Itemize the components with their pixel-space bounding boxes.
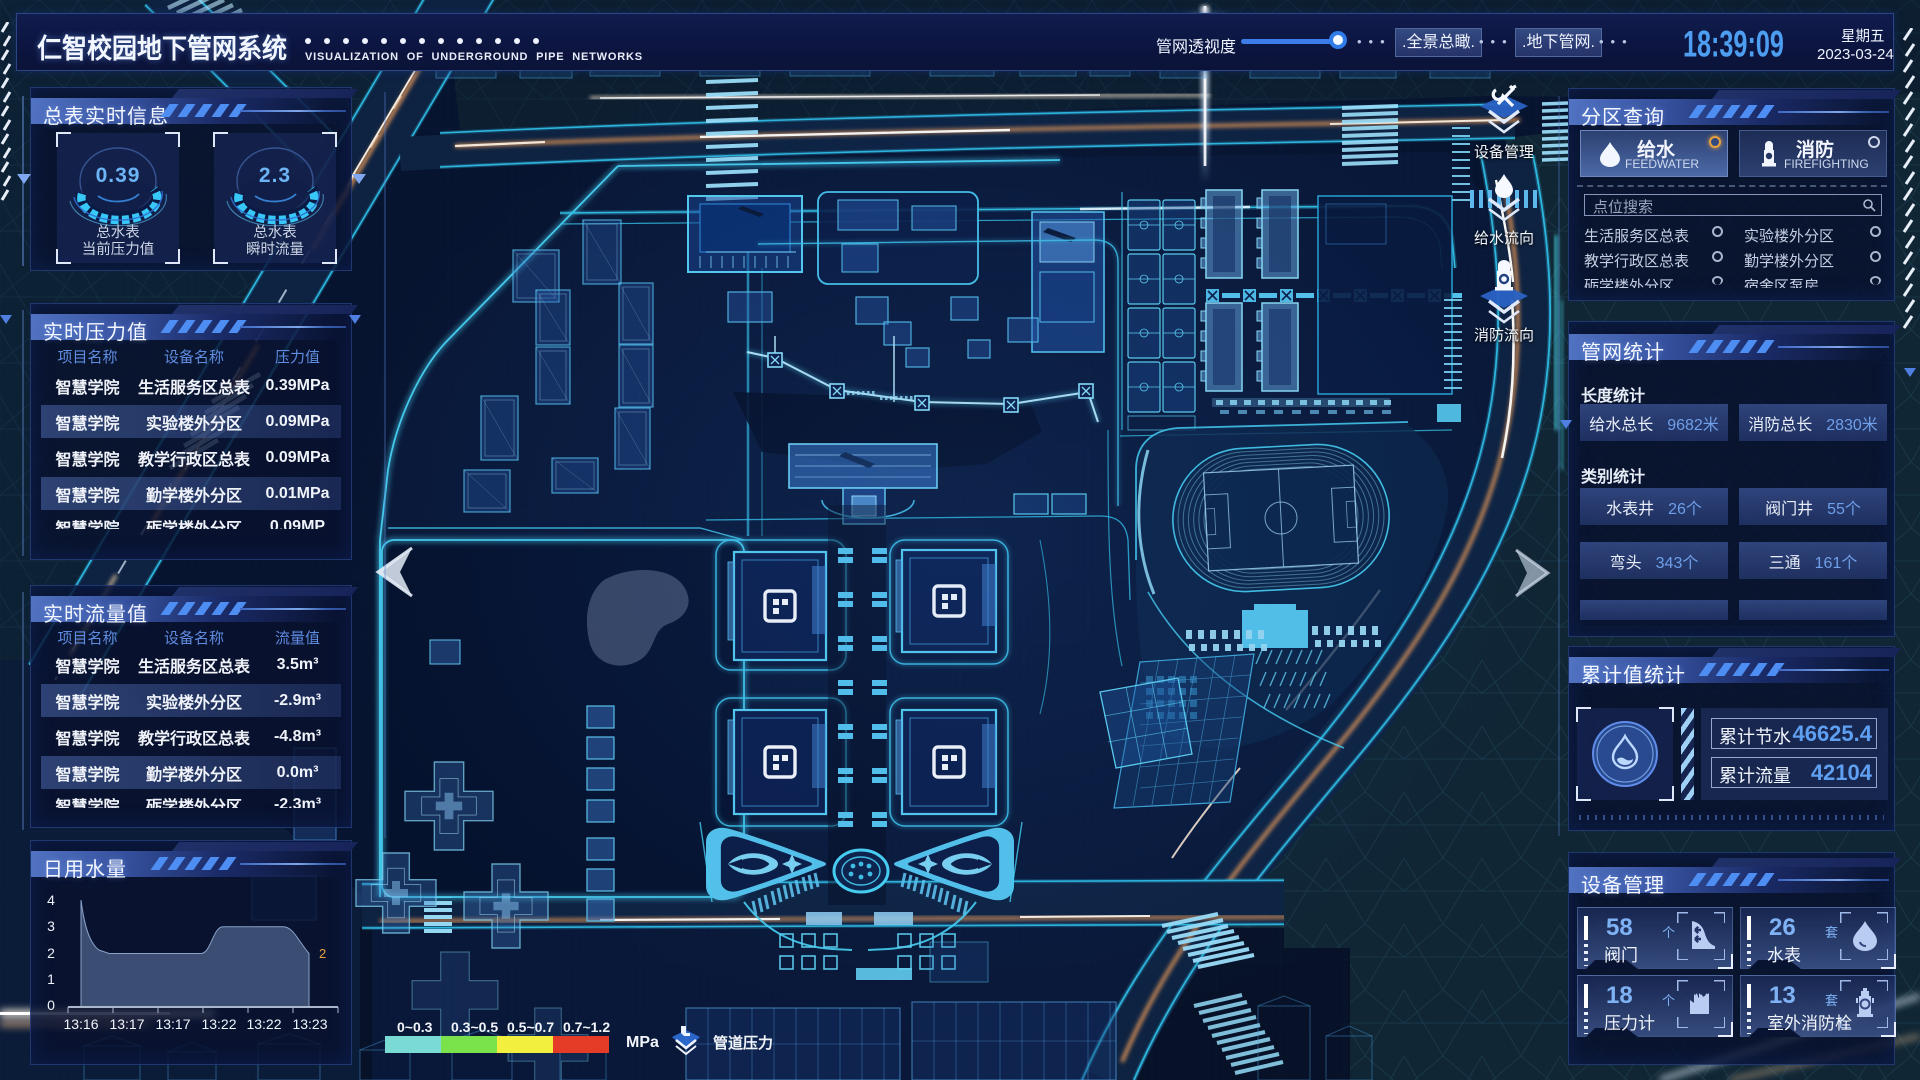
svg-text:2: 2 [319, 946, 326, 961]
svg-text:13:17: 13:17 [109, 1016, 144, 1032]
svg-text:4: 4 [47, 892, 55, 908]
svg-text:13:16: 13:16 [63, 1016, 98, 1032]
svg-text:13:22: 13:22 [246, 1016, 281, 1032]
svg-text:13:23: 13:23 [292, 1016, 327, 1032]
svg-text:3: 3 [47, 918, 55, 934]
svg-text:0: 0 [47, 997, 55, 1013]
svg-text:13:17: 13:17 [155, 1016, 190, 1032]
svg-text:13:22: 13:22 [201, 1016, 236, 1032]
svg-text:2: 2 [47, 945, 55, 961]
svg-text:1: 1 [47, 971, 55, 987]
